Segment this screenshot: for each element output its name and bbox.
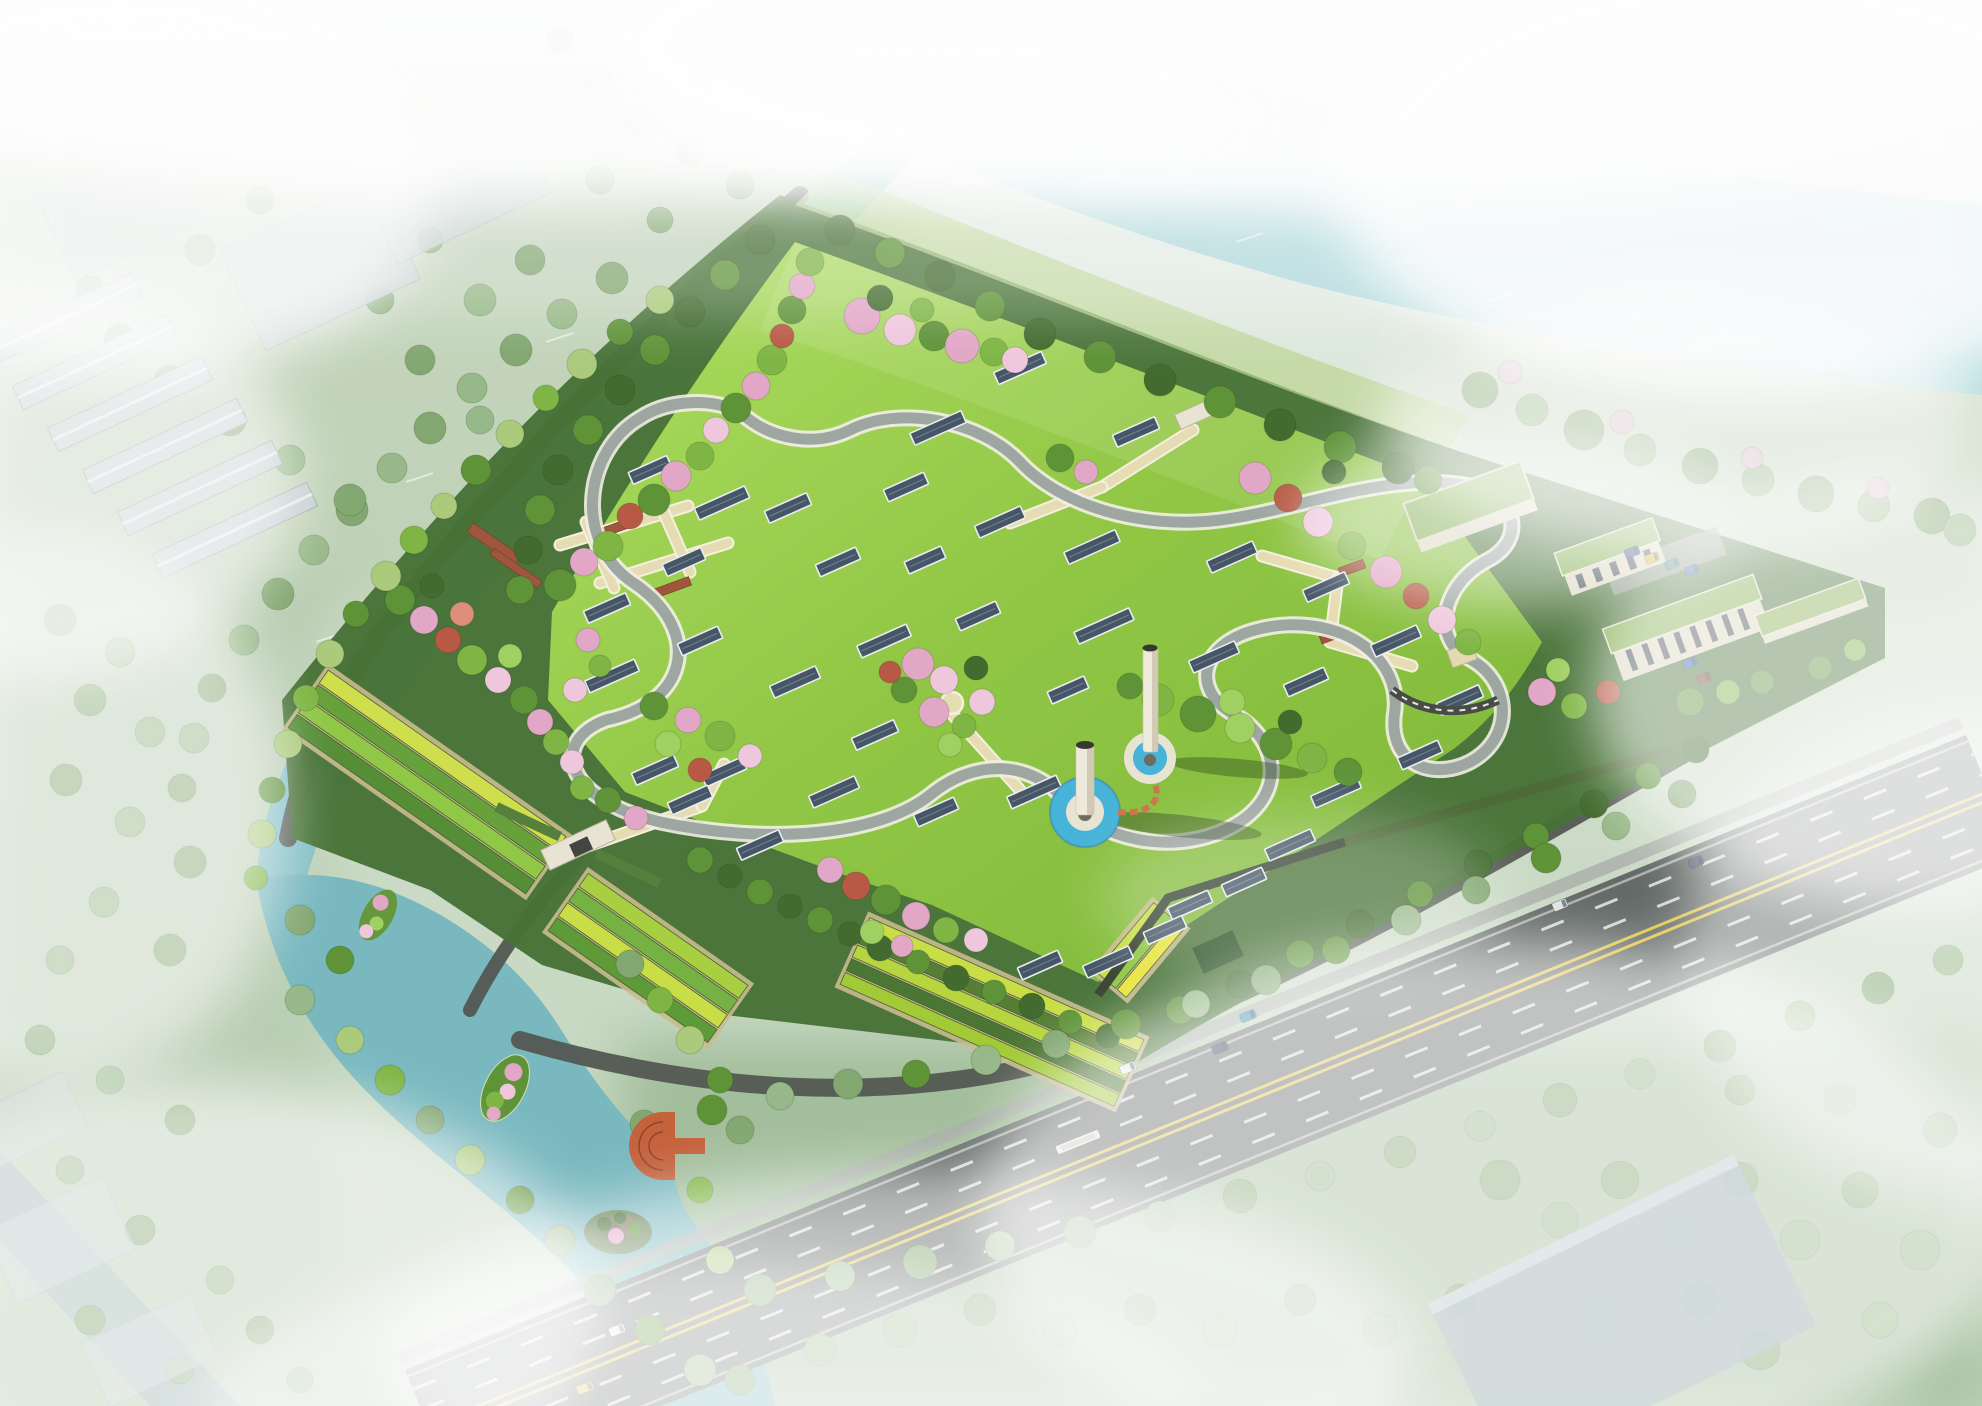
- aerial-park-rendering: [0, 0, 1982, 1406]
- scene-canvas: [0, 0, 1982, 1406]
- global-tint: [0, 0, 1982, 1406]
